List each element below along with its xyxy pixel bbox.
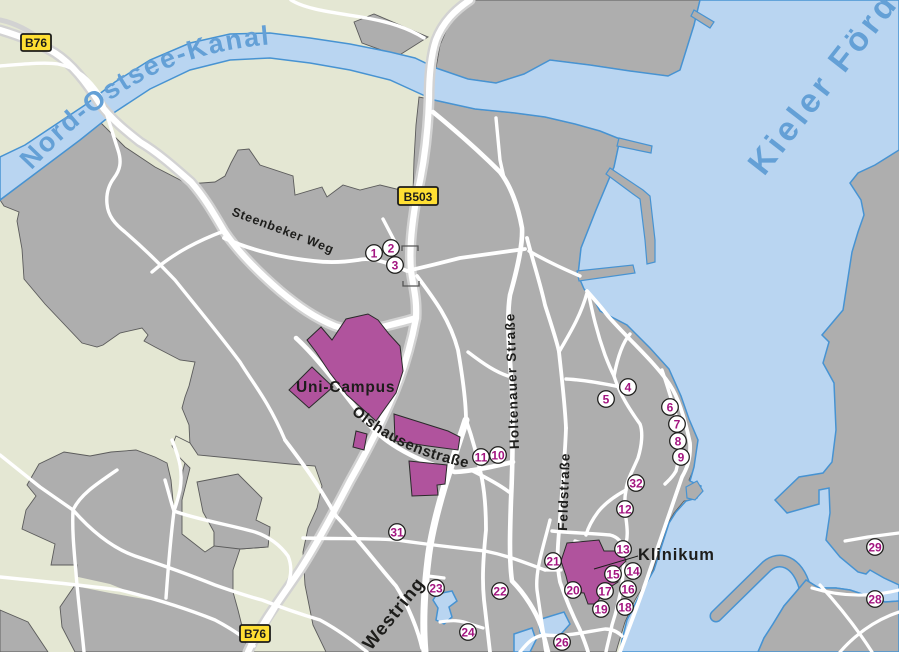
svg-text:20: 20: [566, 583, 580, 597]
svg-text:4: 4: [625, 380, 632, 394]
svg-text:17: 17: [598, 584, 612, 598]
svg-text:Feldstraße: Feldstraße: [555, 452, 573, 531]
svg-text:8: 8: [675, 434, 682, 448]
svg-text:19: 19: [594, 602, 608, 616]
svg-text:Uni-Campus: Uni-Campus: [296, 379, 395, 396]
svg-text:7: 7: [674, 417, 681, 431]
svg-text:11: 11: [475, 450, 488, 464]
svg-text:18: 18: [618, 600, 632, 614]
svg-text:B76: B76: [244, 627, 266, 641]
svg-text:9: 9: [678, 450, 685, 464]
svg-text:26: 26: [555, 635, 569, 649]
svg-text:29: 29: [868, 540, 882, 554]
svg-text:22: 22: [493, 584, 507, 598]
svg-text:14: 14: [626, 564, 640, 578]
svg-text:12: 12: [618, 502, 632, 516]
svg-text:1: 1: [371, 246, 378, 260]
svg-text:6: 6: [667, 400, 674, 414]
svg-text:21: 21: [546, 554, 560, 568]
svg-text:2: 2: [388, 241, 395, 255]
svg-text:3: 3: [392, 258, 399, 272]
svg-text:24: 24: [461, 625, 475, 639]
svg-text:15: 15: [606, 567, 620, 581]
svg-text:13: 13: [616, 542, 630, 556]
svg-text:B503: B503: [404, 190, 433, 204]
svg-text:10: 10: [491, 448, 505, 462]
svg-text:B76: B76: [25, 36, 47, 50]
svg-text:Klinikum: Klinikum: [638, 546, 715, 564]
svg-text:32: 32: [629, 476, 643, 490]
svg-text:16: 16: [621, 582, 635, 596]
svg-text:28: 28: [868, 592, 882, 606]
svg-text:23: 23: [429, 581, 443, 595]
svg-text:5: 5: [603, 392, 610, 406]
svg-text:31: 31: [390, 525, 404, 539]
